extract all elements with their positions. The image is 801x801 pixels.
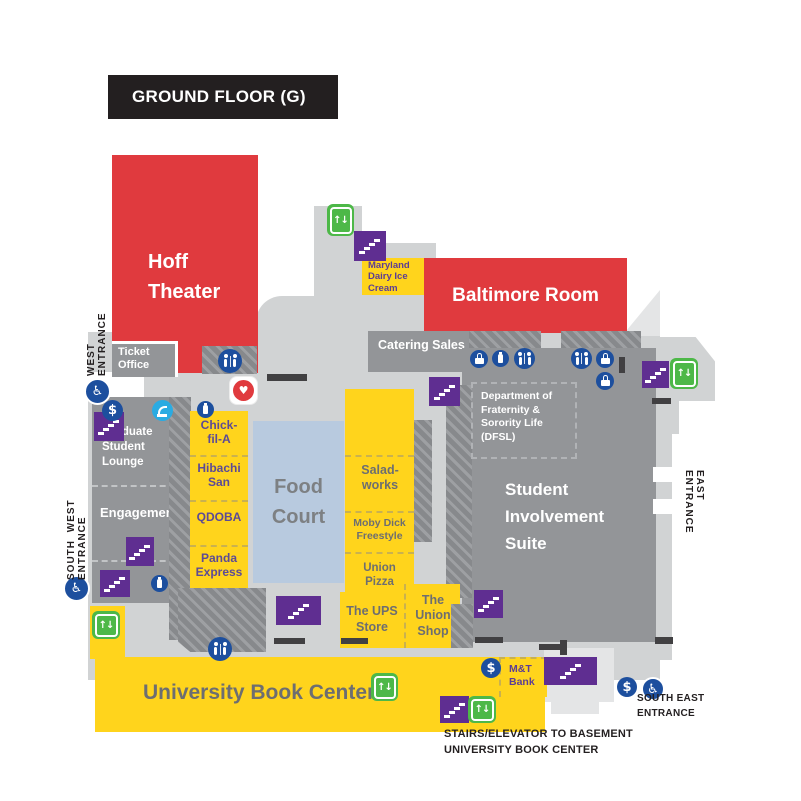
- room-catering-sales: Catering Sales: [368, 331, 469, 372]
- stairs-glyph: [359, 238, 381, 254]
- room-label: The UPS Store: [344, 604, 400, 635]
- atm-dollar-icon: $: [102, 400, 123, 421]
- lock-icon: [596, 350, 614, 368]
- room-dfsl: Department of Fraternity & Sorority Life…: [471, 382, 577, 459]
- elevator-arrows: ↑↓: [99, 620, 114, 631]
- fountain-glyph: [157, 406, 169, 416]
- person-glyph: [528, 357, 531, 365]
- atm-dollar-icon: $: [617, 677, 637, 697]
- water-bottle-icon: [492, 350, 509, 367]
- vendor-label: Union Pizza: [357, 561, 402, 590]
- room-label: University Book Center: [143, 681, 375, 705]
- lock-glyph: [601, 358, 610, 364]
- stairs-glyph: [645, 367, 667, 383]
- restroom-icon: [514, 348, 535, 369]
- wheelchair-glyph: ♿: [92, 385, 104, 398]
- bottle-glyph: [203, 405, 208, 414]
- floor-header: GROUND FLOOR (G): [108, 75, 338, 119]
- room-label: Hoff Theater: [148, 247, 228, 307]
- vendor-label: Salad-works: [354, 463, 406, 493]
- vendor-divider: [190, 500, 248, 502]
- stairs-glyph: [434, 384, 456, 400]
- vendor-label: Hibachi San: [193, 461, 245, 490]
- elevator-icon: ↑↓: [92, 611, 120, 639]
- elevator-icon: ↑↓: [670, 358, 698, 389]
- vendor-divider: [345, 552, 414, 554]
- stairs-glyph: [129, 544, 151, 560]
- room-label: Ticket Office: [112, 344, 164, 372]
- door-mark: [652, 398, 671, 404]
- restroom-icon: [571, 348, 592, 369]
- person-glyph: [585, 357, 588, 365]
- floor-title: GROUND FLOOR (G): [108, 87, 306, 107]
- divider: [220, 644, 221, 655]
- door-mark: [655, 637, 673, 644]
- bottle-glyph: [157, 579, 162, 588]
- vendor-divider: [345, 455, 414, 457]
- door-mark: [267, 374, 307, 381]
- door-mark: [619, 357, 625, 373]
- water-bottle-icon: [151, 575, 168, 592]
- divider: [581, 353, 582, 364]
- vendor-column-left: Chick-fil-A Hibachi San QDOBA Panda Expr…: [190, 411, 248, 591]
- room-label: Department of Fraternity & Sorority Life…: [473, 384, 573, 445]
- person-glyph: [233, 359, 236, 367]
- entrance-label-east: EAST ENTRANCE: [683, 470, 705, 566]
- elevator-arrows: ↑↓: [377, 682, 392, 693]
- stairs-icon: [474, 590, 503, 618]
- room-label: Food Court: [269, 472, 329, 532]
- room-ticket-office: Ticket Office: [112, 341, 178, 377]
- hatch-vendor-right: [414, 420, 432, 542]
- dollar-glyph: $: [486, 661, 495, 676]
- dollar-glyph: $: [108, 403, 117, 418]
- stairs-icon: [642, 361, 669, 388]
- room-mt-bank: M&T Bank: [499, 657, 547, 697]
- room-maryland-dairy: Maryland Dairy Ice Cream: [362, 258, 426, 295]
- heart-glyph: ♥: [239, 385, 249, 396]
- bottle-glyph: [498, 354, 503, 363]
- vendor-label: Panda Express: [190, 551, 248, 580]
- room-food-court: Food Court: [253, 421, 344, 583]
- stairs-glyph: [288, 603, 310, 619]
- basement-access-note: STAIRS/ELEVATOR TO BASEMENT UNIVERSITY B…: [444, 727, 654, 759]
- stairs-glyph: [104, 576, 126, 592]
- lock-icon: [596, 372, 614, 390]
- person-glyph: [576, 357, 579, 365]
- person-glyph: [224, 359, 227, 367]
- door-mark: [560, 640, 567, 655]
- stairs-glyph: [444, 702, 466, 718]
- door-mark: [475, 637, 503, 643]
- door-mark: [341, 638, 368, 644]
- hatch-union-shop-right: [451, 604, 473, 648]
- hatch-sis-left: [446, 385, 472, 598]
- restroom-icon: [218, 349, 242, 373]
- stairs-icon: [544, 657, 597, 685]
- vendor-label: Moby Dick Freestyle: [349, 517, 410, 543]
- aed-circle: ♥: [233, 380, 254, 401]
- stairs-icon: [100, 570, 130, 597]
- room-label: M&T Bank: [501, 659, 539, 689]
- floor-pale-bottom-tongue: [551, 701, 599, 714]
- floor-base-lobby: [256, 296, 366, 380]
- entrance-label-south-west: SOUTH WEST ENTRANCE: [66, 448, 88, 580]
- wheelchair-glyph: ♿: [71, 582, 83, 595]
- room-baltimore-room: Baltimore Room: [424, 258, 627, 333]
- stairs-glyph: [478, 596, 500, 612]
- entrance-label-south-east: SOUTH EAST ENTRANCE: [637, 692, 723, 721]
- atm-dollar-icon: $: [481, 658, 501, 678]
- divider: [230, 356, 231, 367]
- stairs-icon: [276, 596, 321, 625]
- lock-icon: [470, 350, 488, 368]
- door-gap: [653, 467, 673, 482]
- stairs-icon: [440, 696, 469, 723]
- door-gap: [653, 499, 673, 514]
- floor-map: GROUND FLOOR (G) Hoff Theater Ticket Off…: [0, 0, 801, 801]
- water-bottle-icon: [197, 401, 214, 418]
- vendor-column-right: Salad-works Moby Dick Freestyle Union Pi…: [345, 389, 414, 600]
- lock-glyph: [475, 358, 484, 364]
- accessibility-icon: ♿: [84, 378, 111, 405]
- stairs-icon: [354, 231, 386, 261]
- vendor-divider: [345, 511, 414, 513]
- aed-icon: ♥: [230, 377, 257, 404]
- dollar-glyph: $: [622, 680, 631, 695]
- stairs-glyph: [98, 419, 120, 435]
- restroom-icon: [208, 637, 232, 661]
- elevator-icon: ↑↓: [468, 696, 496, 723]
- person-glyph: [519, 357, 522, 365]
- water-fountain-icon: [152, 400, 173, 421]
- person-glyph: [214, 647, 217, 655]
- vendor-divider: [190, 455, 248, 457]
- vendor-label: Chick-fil-A: [194, 419, 244, 447]
- stairs-icon: [429, 377, 460, 406]
- floor-pale-baltimore-right: [622, 290, 660, 336]
- room-label: Catering Sales: [368, 331, 469, 352]
- elevator-icon: ↑↓: [371, 673, 398, 701]
- room-label: The Union Shop: [412, 593, 454, 640]
- stairs-glyph: [560, 663, 582, 679]
- elevator-arrows: ↑↓: [677, 368, 692, 379]
- vendor-divider: [190, 545, 248, 547]
- elevator-arrows: ↑↓: [475, 704, 490, 715]
- door-mark: [274, 638, 305, 644]
- stairs-icon: [126, 537, 154, 566]
- entrance-label-west: WEST ENTRANCE: [86, 286, 108, 376]
- lock-glyph: [601, 380, 610, 386]
- elevator-icon: ↑↓: [327, 204, 354, 236]
- room-label: Baltimore Room: [452, 285, 599, 307]
- vendor-label: QDOBA: [190, 510, 248, 524]
- divider: [524, 353, 525, 364]
- elevator-arrows: ↑↓: [333, 215, 348, 226]
- door-mark: [539, 644, 560, 650]
- room-label: Maryland Dairy Ice Cream: [362, 258, 420, 294]
- person-glyph: [223, 647, 226, 655]
- room-label: Student Involvement Suite: [505, 476, 625, 557]
